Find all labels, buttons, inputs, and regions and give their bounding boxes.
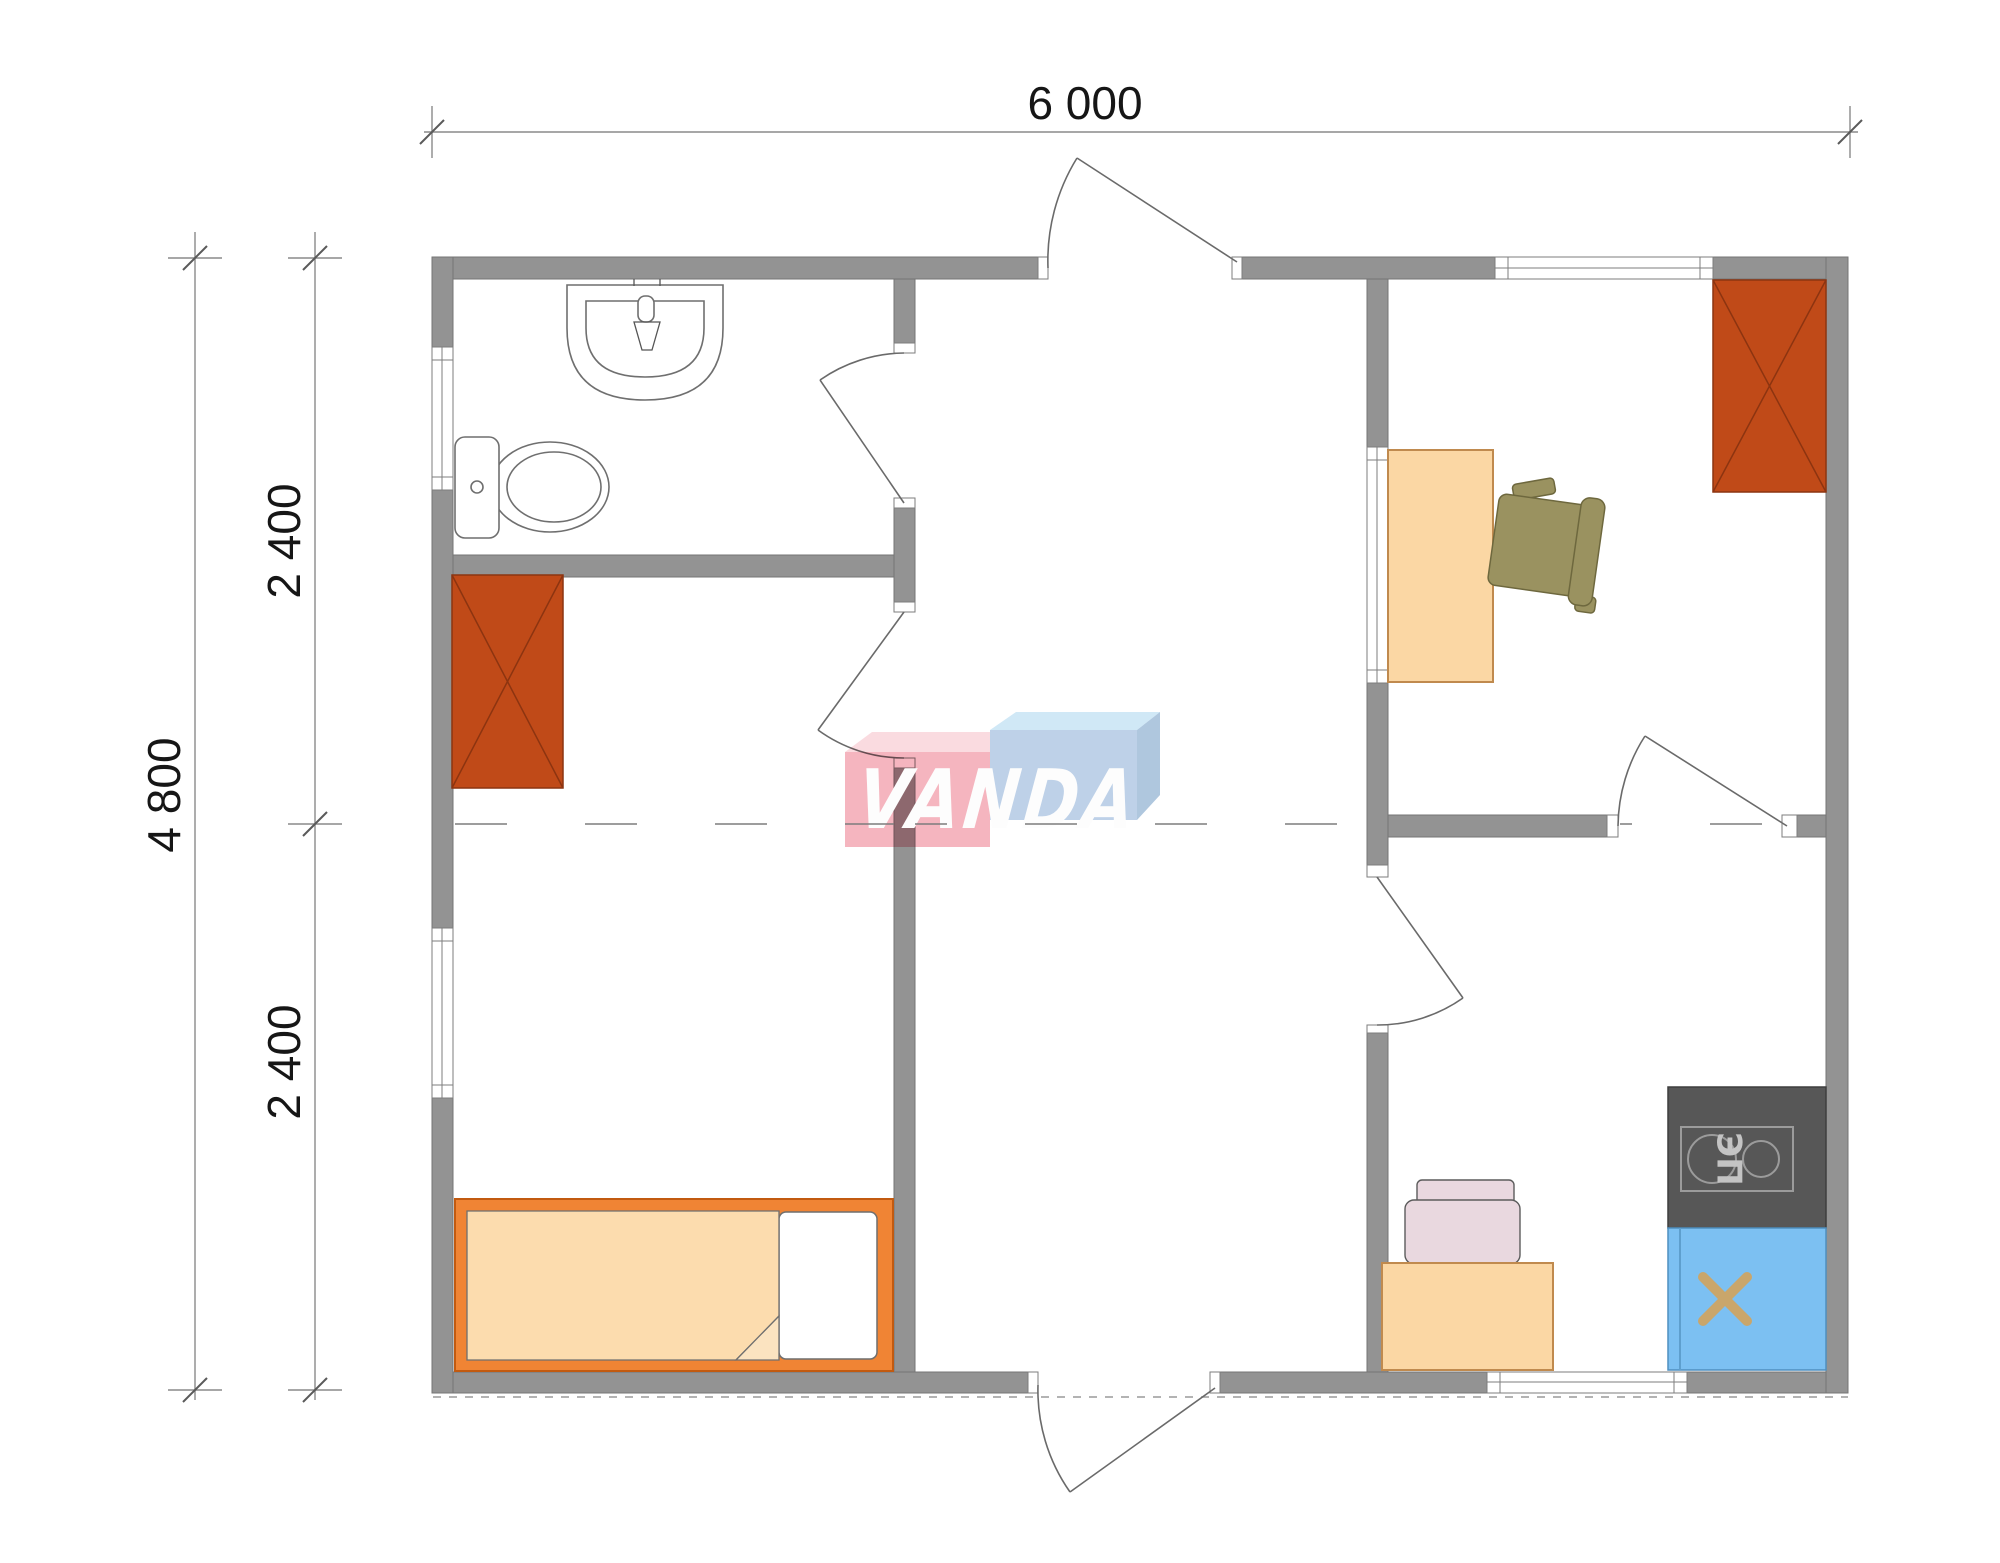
floor-plan-drawing: ЭП VANDA 6 000	[0, 0, 2000, 1563]
floor-plan-page: ЭП VANDA 6 000	[0, 0, 2000, 1563]
pillow	[779, 1212, 877, 1359]
bathroom-fixtures	[455, 279, 723, 538]
stove: ЭП	[1668, 1087, 1826, 1228]
window-interior-study	[1367, 447, 1388, 683]
window-left-bathroom	[432, 347, 453, 490]
dimension-left-segments: 2 400 2 400	[258, 232, 342, 1402]
interior-wall-hall-right	[1367, 279, 1388, 1372]
door-jamb	[1367, 1025, 1388, 1033]
interior-wall-bathroom-bottom	[453, 555, 894, 577]
vanda-watermark: VANDA	[845, 712, 1160, 848]
door-jamb	[1038, 257, 1048, 279]
dimension-label-upper-segment: 2 400	[258, 483, 310, 598]
faucet-icon	[638, 296, 654, 322]
door-jamb	[894, 343, 915, 353]
door-jamb	[1367, 865, 1388, 877]
study-door-swing	[1618, 736, 1787, 826]
study-door-opening	[1607, 814, 1797, 838]
office-chair	[1485, 470, 1612, 613]
stove-label: ЭП	[1709, 1132, 1749, 1185]
entry-door-top-opening	[1038, 255, 1242, 280]
dimension-label-width: 6 000	[1027, 77, 1142, 129]
kitchen-chair	[1405, 1180, 1520, 1264]
bed	[455, 1199, 893, 1371]
logo-text: VANDA	[853, 752, 1143, 848]
entry-door-top-swing	[1048, 158, 1237, 268]
entry-door-bottom-opening	[1028, 1371, 1220, 1394]
dimension-label-lower-segment: 2 400	[258, 1004, 310, 1119]
kitchen-door-swing	[1377, 877, 1463, 1025]
window-bottom-kitchen	[1487, 1372, 1687, 1393]
bathroom-sink	[567, 279, 723, 400]
window-left-bedroom	[432, 928, 453, 1098]
kitchen-table	[1382, 1263, 1553, 1370]
exterior-wall-right	[1826, 257, 1848, 1393]
kitchen-sink	[1668, 1228, 1826, 1370]
toilet	[455, 437, 609, 538]
desk	[1388, 450, 1493, 682]
blanket	[467, 1211, 779, 1360]
door-jamb	[1028, 1372, 1038, 1393]
door-jamb	[1607, 815, 1618, 837]
door-jamb	[894, 602, 915, 612]
door-jamb	[894, 498, 915, 508]
wardrobe-bedroom	[452, 575, 563, 788]
entry-door-bottom-swing	[1038, 1385, 1215, 1492]
door-jamb	[1782, 815, 1797, 837]
wardrobe-study	[1713, 280, 1826, 492]
logo-pink-top-face	[845, 732, 1000, 752]
bathroom-door-opening	[893, 343, 916, 508]
logo-blue-top-face	[990, 712, 1160, 730]
window-top-study	[1495, 257, 1713, 279]
dimension-label-height: 4 800	[138, 737, 190, 852]
dimension-left-total: 4 800	[138, 232, 222, 1402]
bathroom-door-swing	[820, 353, 904, 503]
dimension-top-width: 6 000	[420, 77, 1862, 158]
